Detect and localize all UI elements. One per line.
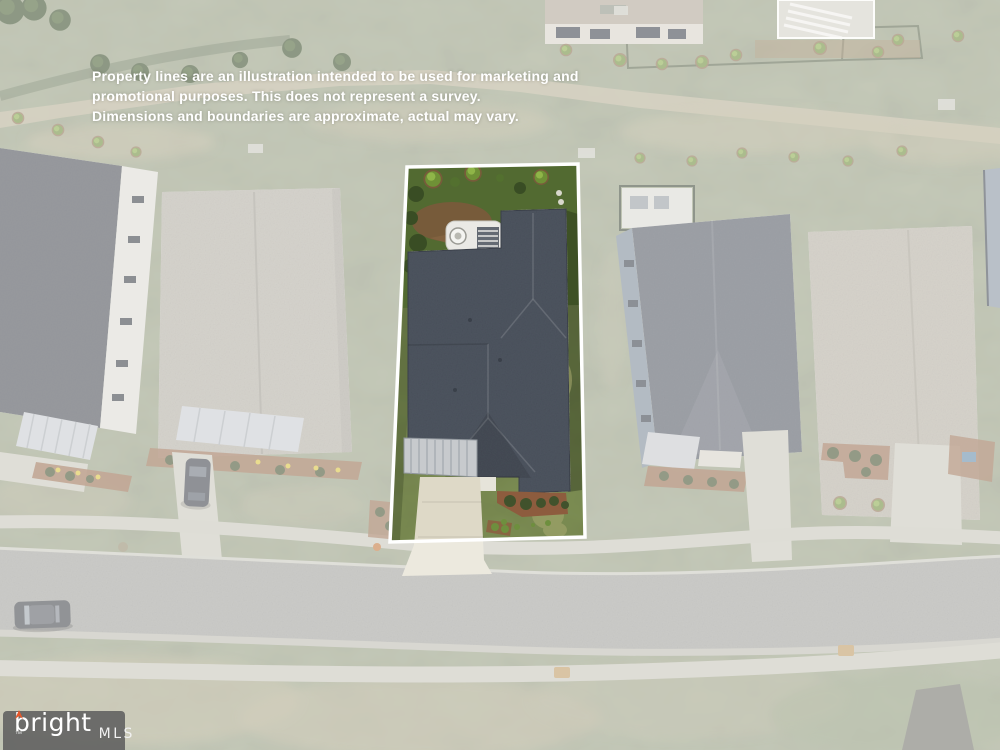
stepping-stone xyxy=(558,199,564,205)
logo-brand-text: bright xyxy=(14,708,92,737)
front-stoop xyxy=(479,477,496,491)
brightmls-logo: bright ™ MLS xyxy=(3,711,125,750)
disclaimer-line: Dimensions and boundaries are approximat… xyxy=(92,106,579,126)
stepping-stone xyxy=(556,190,562,196)
porch-metal-roof xyxy=(404,438,477,477)
subject-lot xyxy=(390,164,585,576)
aerial-photo: Property lines are an illustration inten… xyxy=(0,0,1000,750)
backyard-tree xyxy=(423,169,442,188)
logo-suffix-text: MLS xyxy=(99,719,135,742)
subject-house xyxy=(404,209,570,493)
disclaimer-line: promotional purposes. This does not repr… xyxy=(92,86,579,106)
shrub xyxy=(450,177,460,187)
disclaimer-text: Property lines are an illustration inten… xyxy=(92,66,579,126)
logo-flame-icon xyxy=(14,710,24,719)
roof-hip xyxy=(408,344,488,345)
backyard-tree xyxy=(533,169,549,185)
logo-trademark: ™ xyxy=(15,731,22,738)
disclaimer-line: Property lines are an illustration inten… xyxy=(92,66,579,86)
shrub xyxy=(496,174,504,182)
logo-brand-wrap: bright ™ xyxy=(14,710,92,750)
